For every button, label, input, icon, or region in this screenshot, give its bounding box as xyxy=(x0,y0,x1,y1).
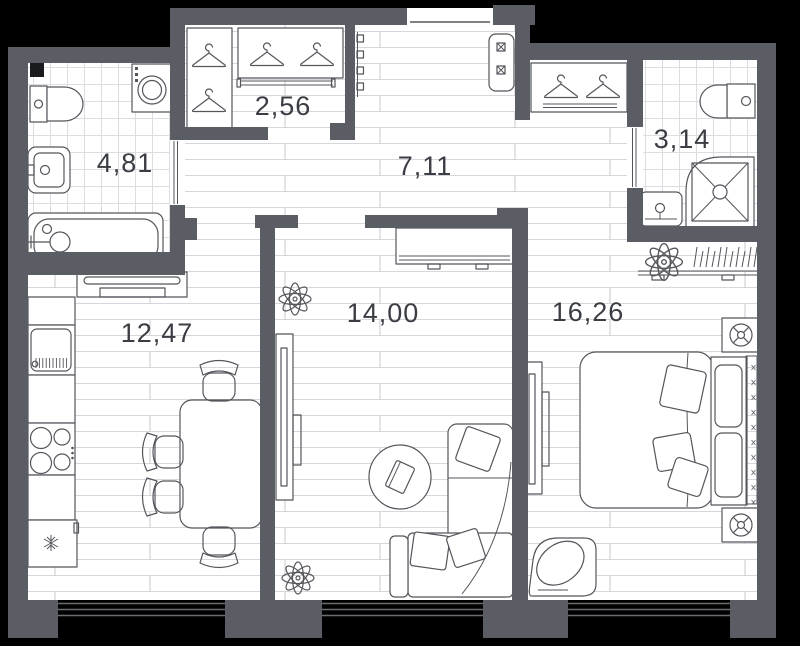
shower-icon xyxy=(686,157,754,227)
radiator xyxy=(746,356,757,504)
nightstand-icon xyxy=(722,318,760,352)
area-label-bedroom: 16,26 xyxy=(552,297,625,327)
stove-icon xyxy=(28,423,75,475)
wardrobe-unit-left xyxy=(187,28,232,128)
wall-wardrobe-bottom xyxy=(178,127,268,140)
kitchen-counter xyxy=(28,297,75,325)
floor-plan-canvas: 4,81 2,56 7,11 3,14 12,47 14,00 16,26 xyxy=(0,0,800,646)
window-bedroom xyxy=(568,600,730,646)
toilet-icon xyxy=(700,84,755,118)
wall-top-left xyxy=(170,8,407,25)
toilet-icon xyxy=(30,86,83,122)
room-floor-bedroom-a-planks xyxy=(528,60,627,600)
wall-bath2-left-upper xyxy=(627,60,643,127)
sink-icon xyxy=(25,147,70,193)
wall-bottom-left-corner xyxy=(8,600,58,638)
washing-machine-icon xyxy=(132,64,172,112)
wall-bottom-pier-1 xyxy=(225,600,322,638)
area-label-living: 14,00 xyxy=(347,298,420,328)
wall-wardrobe-right xyxy=(345,25,355,127)
area-label-kitchen: 12,47 xyxy=(121,318,194,348)
wall-bath2-bottom xyxy=(627,226,757,242)
wall-bottom-pier-2 xyxy=(483,600,568,638)
kitchen-counter xyxy=(28,475,75,520)
wall-entry-stub xyxy=(515,5,530,120)
window-living xyxy=(322,600,483,646)
wall-bottom-right-corner xyxy=(730,600,776,638)
wall-left xyxy=(8,47,28,625)
shoe-bench xyxy=(489,34,514,91)
wall-stub xyxy=(185,218,197,240)
wall-step xyxy=(170,8,185,63)
wall-top-right xyxy=(530,43,776,60)
fridge-icon xyxy=(28,520,79,567)
sink-icon xyxy=(640,192,682,226)
area-label-hallway: 7,11 xyxy=(398,151,453,181)
nightstand-icon xyxy=(722,508,760,542)
wall-bath1-top xyxy=(8,47,185,63)
bed-icon xyxy=(580,352,747,508)
coat-rack xyxy=(531,63,627,112)
window-kitchen xyxy=(58,600,225,646)
door-bathroom-1 xyxy=(170,140,185,205)
area-label-bathroom-1: 4,81 xyxy=(97,148,154,178)
wall-kitchen-living-divider xyxy=(260,215,275,600)
sideboard xyxy=(396,228,513,269)
dining-table-icon xyxy=(180,400,262,528)
floor-plan: 4,81 2,56 7,11 3,14 12,47 14,00 16,26 xyxy=(0,0,800,646)
area-label-wardrobe: 2,56 xyxy=(255,91,312,121)
coffee-table-icon xyxy=(369,445,431,509)
wall-living-top xyxy=(365,215,512,228)
wall-bath1-bottom xyxy=(8,252,185,275)
wardrobe-unit-top xyxy=(238,28,343,78)
wall-right xyxy=(757,43,776,625)
area-label-bathroom-2: 3,14 xyxy=(654,124,711,154)
wall-living-bedroom-divider xyxy=(512,208,528,600)
vent-shaft-icon xyxy=(30,63,44,77)
door-bathroom-2 xyxy=(627,127,643,188)
kitchen-sink-icon xyxy=(28,325,75,375)
kitchen-counter xyxy=(28,375,75,423)
kitchen-hood xyxy=(77,272,187,297)
